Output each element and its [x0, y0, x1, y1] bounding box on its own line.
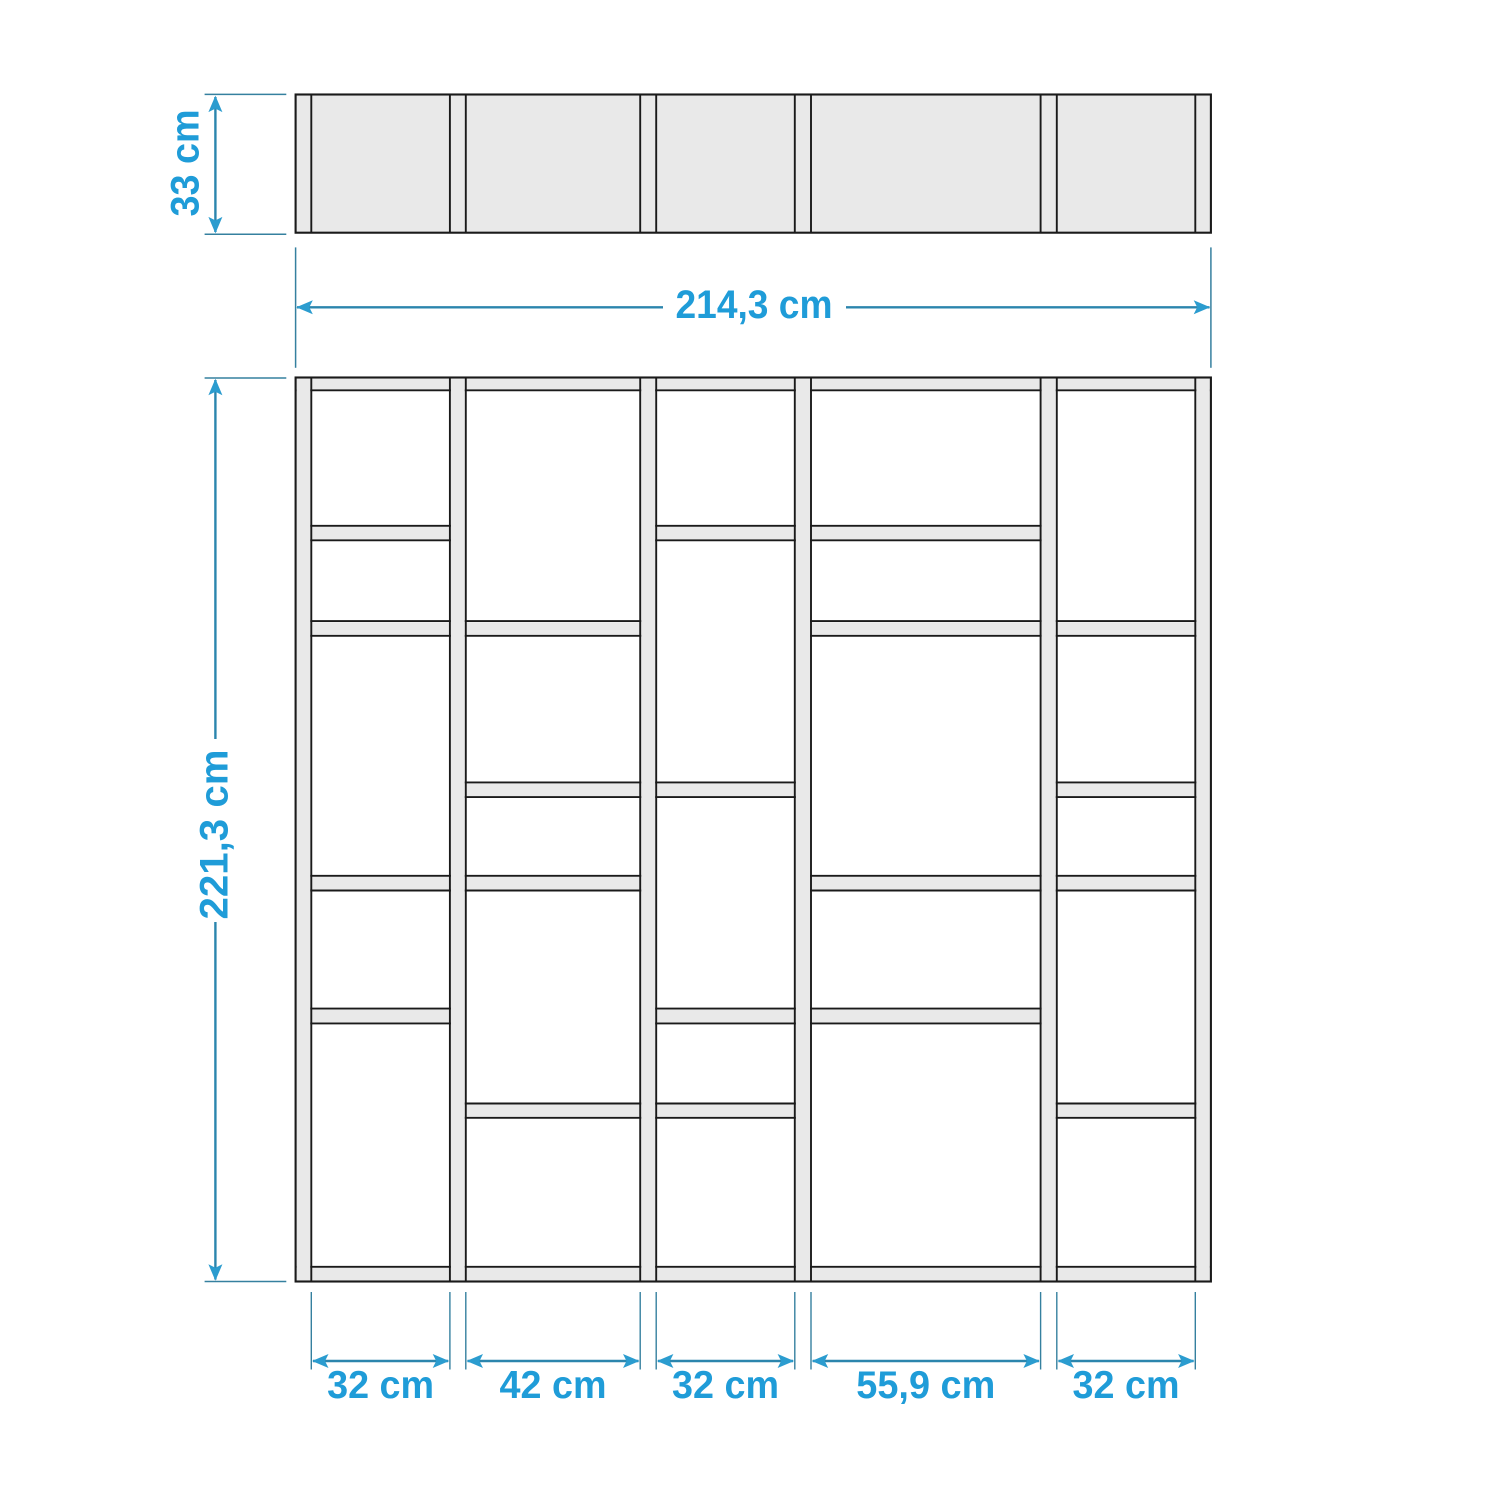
svg-text:32 cm: 32 cm	[1073, 1364, 1180, 1407]
svg-text:55,9 cm: 55,9 cm	[856, 1364, 995, 1407]
svg-text:32 cm: 32 cm	[672, 1364, 779, 1407]
svg-text:32 cm: 32 cm	[327, 1364, 434, 1407]
svg-text:42 cm: 42 cm	[500, 1364, 607, 1407]
svg-text:214,3 cm: 214,3 cm	[676, 283, 833, 327]
svg-text:33 cm: 33 cm	[163, 110, 207, 217]
svg-text:221,3 cm: 221,3 cm	[192, 750, 236, 920]
